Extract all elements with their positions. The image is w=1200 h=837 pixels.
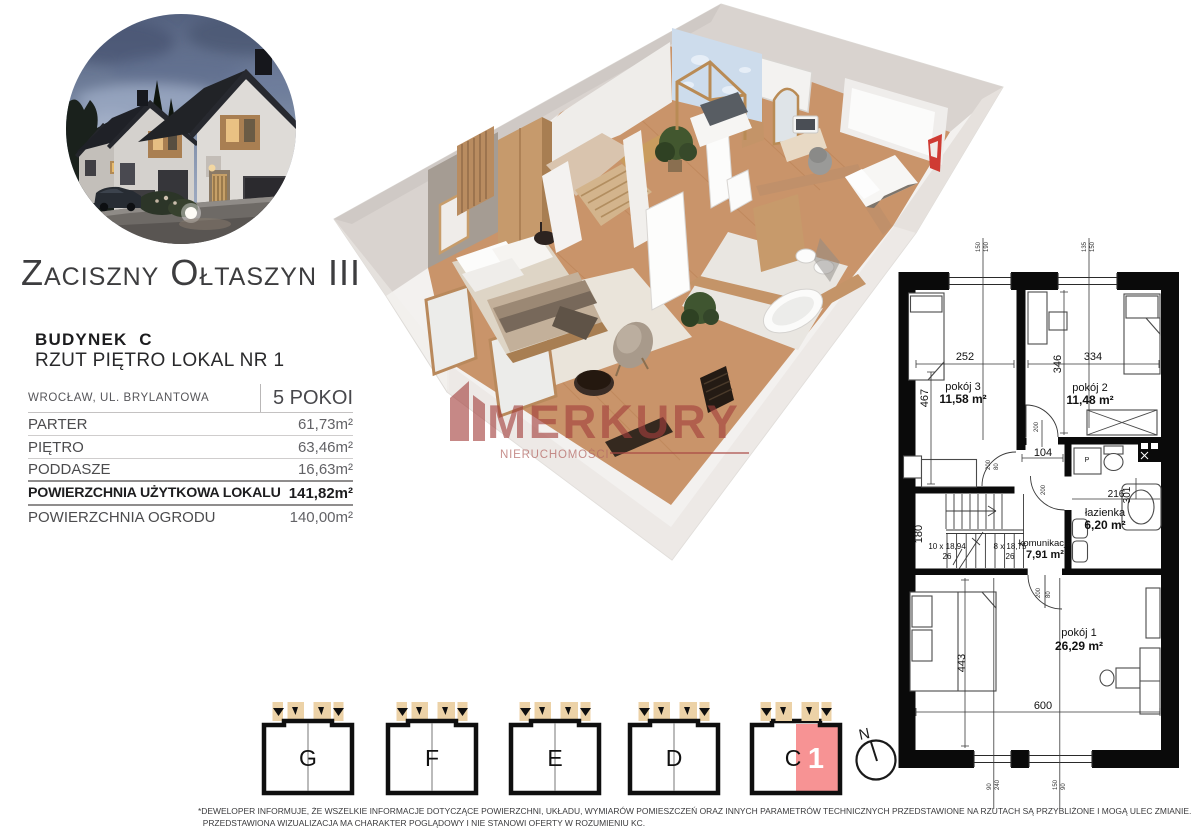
svg-text:150: 150 (976, 241, 982, 252)
svg-text:10 x 18,94: 10 x 18,94 (928, 542, 966, 551)
svg-text:80: 80 (1046, 591, 1052, 598)
svg-text:80: 80 (994, 463, 1000, 470)
svg-text:150: 150 (1053, 779, 1059, 790)
svg-text:334: 334 (1084, 351, 1102, 363)
svg-text:26: 26 (943, 552, 952, 561)
svg-text:600: 600 (1034, 700, 1052, 712)
svg-text:NIERUCHOMOŚCI: NIERUCHOMOŚCI (500, 448, 609, 461)
svg-text:200: 200 (986, 459, 992, 470)
svg-text:252: 252 (956, 351, 974, 363)
svg-text:301: 301 (1122, 486, 1133, 503)
svg-text:6,20 m²: 6,20 m² (1084, 518, 1125, 532)
svg-text:467: 467 (919, 389, 931, 407)
svg-text:D: D (666, 745, 683, 771)
svg-text:200: 200 (1034, 421, 1040, 432)
svg-text:26: 26 (1006, 552, 1015, 561)
svg-text:MERKURY: MERKURY (487, 395, 740, 448)
svg-text:11,48 m²: 11,48 m² (1066, 393, 1113, 407)
svg-text:G: G (299, 745, 317, 771)
svg-text:90: 90 (987, 783, 993, 790)
svg-text:8 x 18,75: 8 x 18,75 (994, 542, 1027, 551)
svg-text:150: 150 (1090, 241, 1096, 252)
svg-text:N: N (857, 725, 871, 744)
svg-text:F: F (425, 745, 439, 771)
svg-text:200: 200 (1036, 587, 1042, 598)
svg-text:komunikacja: komunikacja (1019, 538, 1073, 549)
svg-text:200: 200 (1041, 484, 1047, 495)
svg-text:11,58 m²: 11,58 m² (939, 392, 986, 406)
svg-text:240: 240 (995, 779, 1001, 790)
svg-text:180: 180 (913, 525, 925, 543)
svg-text:E: E (547, 745, 562, 771)
svg-text:135: 135 (1082, 241, 1088, 252)
svg-text:P: P (1085, 457, 1090, 464)
svg-text:1: 1 (808, 743, 824, 775)
svg-text:C: C (785, 745, 802, 771)
svg-text:346: 346 (1052, 355, 1064, 373)
svg-text:pokój 1: pokój 1 (1061, 627, 1096, 639)
svg-text:90: 90 (1061, 783, 1067, 790)
svg-text:26,29 m²: 26,29 m² (1055, 639, 1103, 653)
svg-text:104: 104 (1034, 447, 1052, 459)
svg-text:443: 443 (956, 654, 968, 672)
svg-text:190: 190 (984, 241, 990, 252)
svg-text:7,91 m²: 7,91 m² (1026, 549, 1064, 561)
